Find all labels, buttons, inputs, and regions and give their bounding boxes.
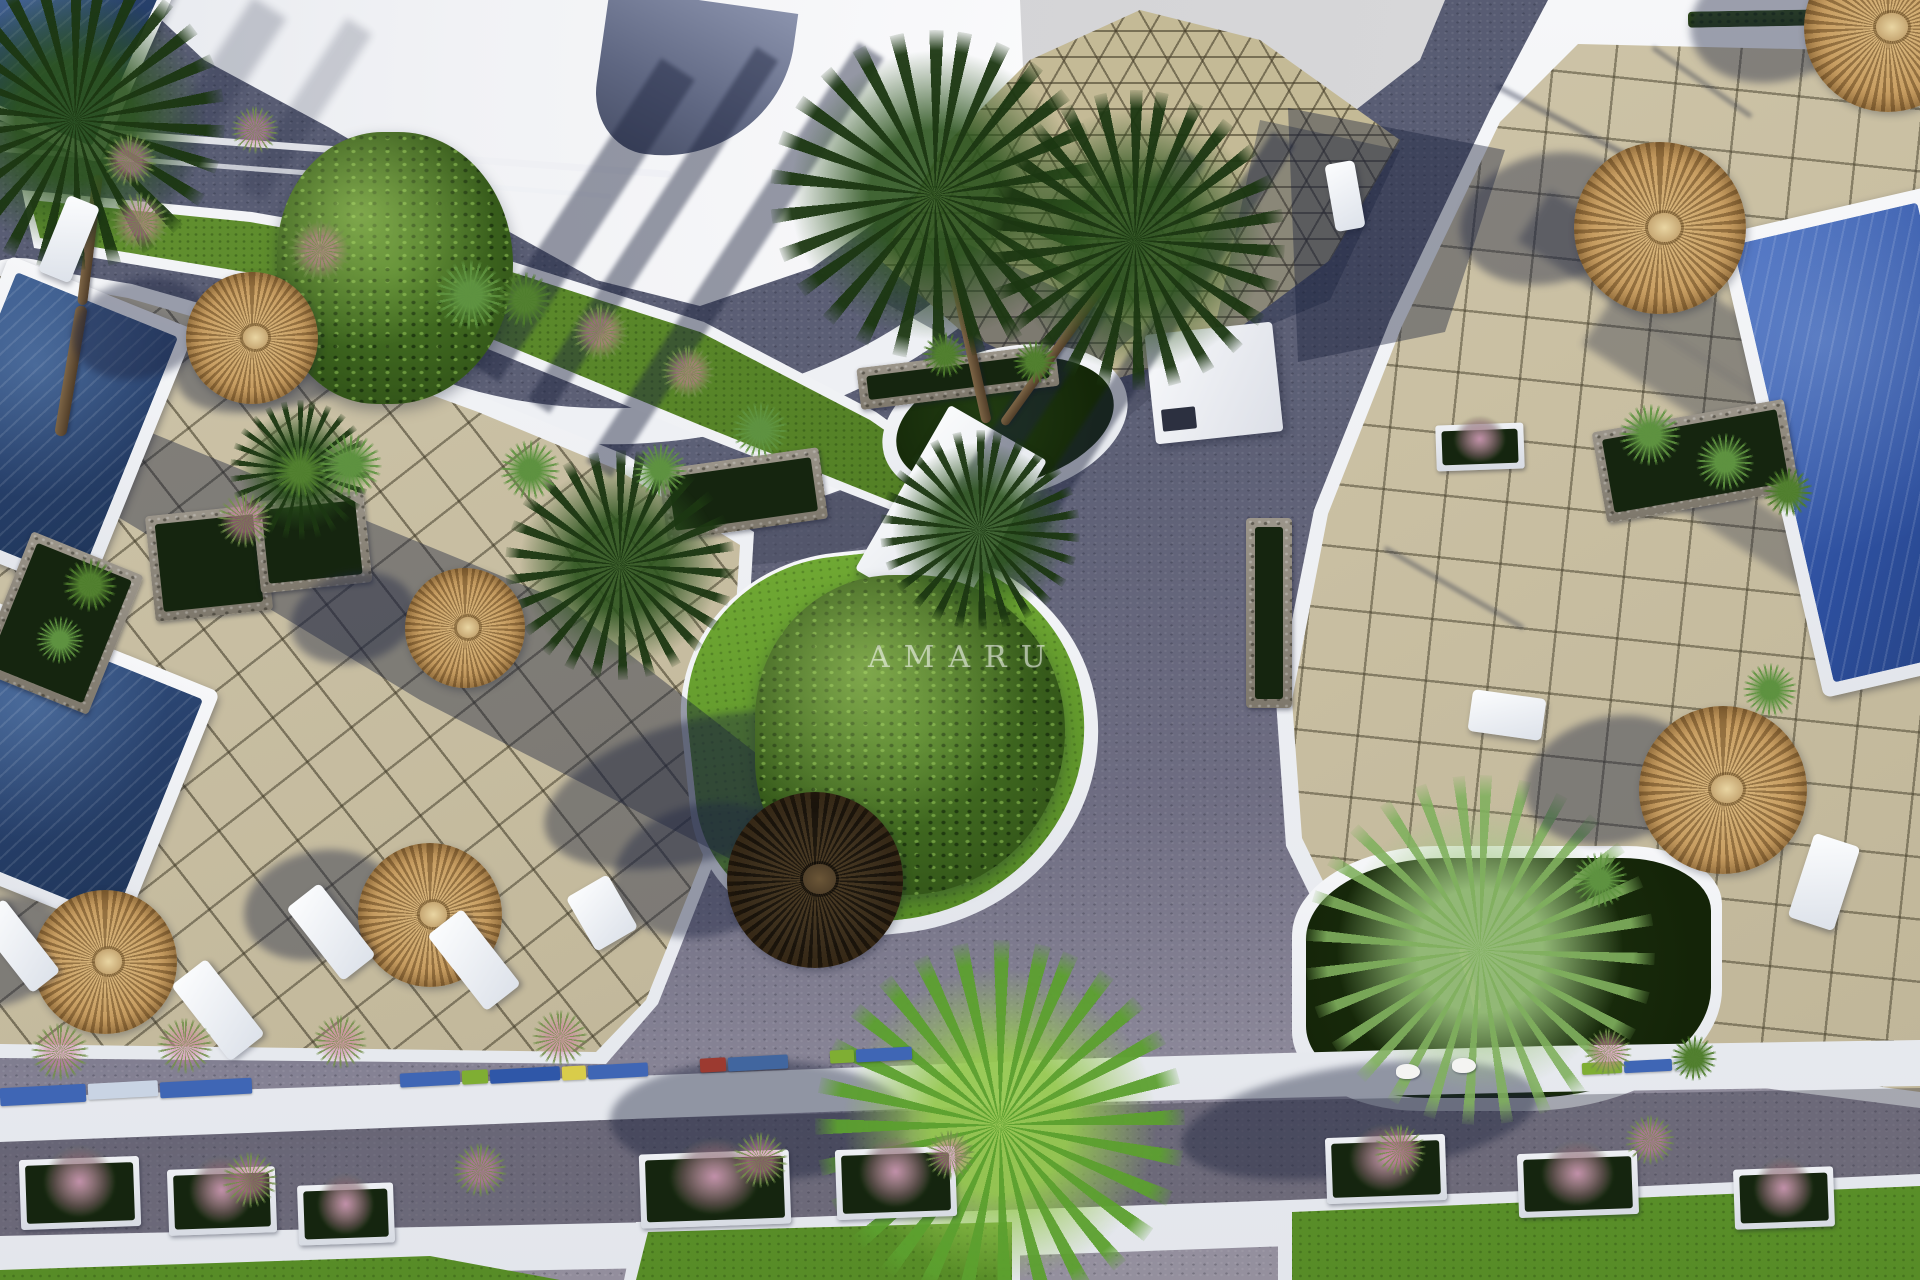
planter-box	[1733, 1166, 1835, 1229]
thatch-umbrella	[727, 792, 903, 968]
plant-green	[497, 272, 553, 328]
plant-pink	[217, 492, 273, 548]
plant-fern	[435, 260, 505, 330]
planter-box	[297, 1182, 395, 1245]
plant-green	[274, 446, 326, 498]
plant-fern	[1696, 433, 1754, 491]
plant-pink	[288, 218, 352, 282]
thatch-umbrella	[405, 568, 525, 688]
plant-pink	[31, 1023, 89, 1081]
white-bird-figure	[1452, 1058, 1476, 1073]
plant-fern	[318, 433, 382, 497]
plant-fern	[1743, 663, 1797, 717]
plant-pink	[1625, 1115, 1675, 1165]
flowering-shrub	[308, 1164, 384, 1244]
flowering-shrub	[1744, 1148, 1823, 1229]
structure-window	[1161, 406, 1197, 431]
plant-green	[1013, 340, 1057, 384]
plant-pink	[453, 1143, 507, 1197]
accent-tile	[562, 1065, 587, 1080]
planter-soil	[1255, 527, 1283, 699]
planter-box	[19, 1156, 141, 1230]
plant-pink	[231, 106, 279, 154]
plant-fern	[36, 616, 84, 664]
plant-pink	[157, 1018, 213, 1074]
plant-pink	[571, 303, 629, 361]
plant-fern	[1572, 852, 1628, 908]
flowering-shrub	[1531, 1130, 1625, 1216]
plant-pink	[110, 192, 170, 252]
thatch-umbrella	[33, 890, 177, 1034]
plant-pink	[532, 1010, 588, 1066]
flowering-shrub	[32, 1134, 126, 1228]
plant-green	[63, 558, 117, 612]
plant-fern	[732, 402, 788, 458]
plant-pink	[661, 345, 715, 399]
plant-pink	[103, 133, 157, 187]
resort-aerial-render: AMARU	[0, 0, 1920, 1280]
plant-green	[1671, 1035, 1717, 1081]
plant-pink	[1374, 1124, 1426, 1176]
flowering-shrub	[1445, 408, 1514, 470]
accent-tile	[700, 1057, 727, 1072]
accent-tile	[830, 1049, 855, 1063]
plant-fern	[500, 440, 560, 500]
plant-fern	[1619, 404, 1681, 466]
stone-planter	[1246, 518, 1292, 708]
palm-canopy	[880, 430, 1080, 630]
plant-fern	[633, 443, 687, 497]
plant-pink	[1584, 1028, 1632, 1076]
planter-box	[1435, 422, 1525, 471]
plant-pink	[925, 1130, 975, 1180]
thatch-umbrella	[1639, 706, 1807, 874]
plant-pink	[732, 1132, 788, 1188]
accent-tile	[462, 1069, 489, 1084]
thatch-umbrella	[186, 272, 318, 404]
thatch-umbrella	[1574, 142, 1746, 314]
plant-pink	[313, 1015, 367, 1069]
plant-green	[1763, 467, 1813, 517]
plant-green	[922, 332, 968, 378]
watermark-text: AMARU	[868, 640, 1060, 675]
flowering-shrub	[848, 1124, 942, 1218]
accent-tile	[1624, 1059, 1673, 1073]
white-bird-figure	[1396, 1064, 1420, 1079]
plant-pink	[222, 1152, 278, 1208]
planter-box	[1517, 1150, 1639, 1218]
